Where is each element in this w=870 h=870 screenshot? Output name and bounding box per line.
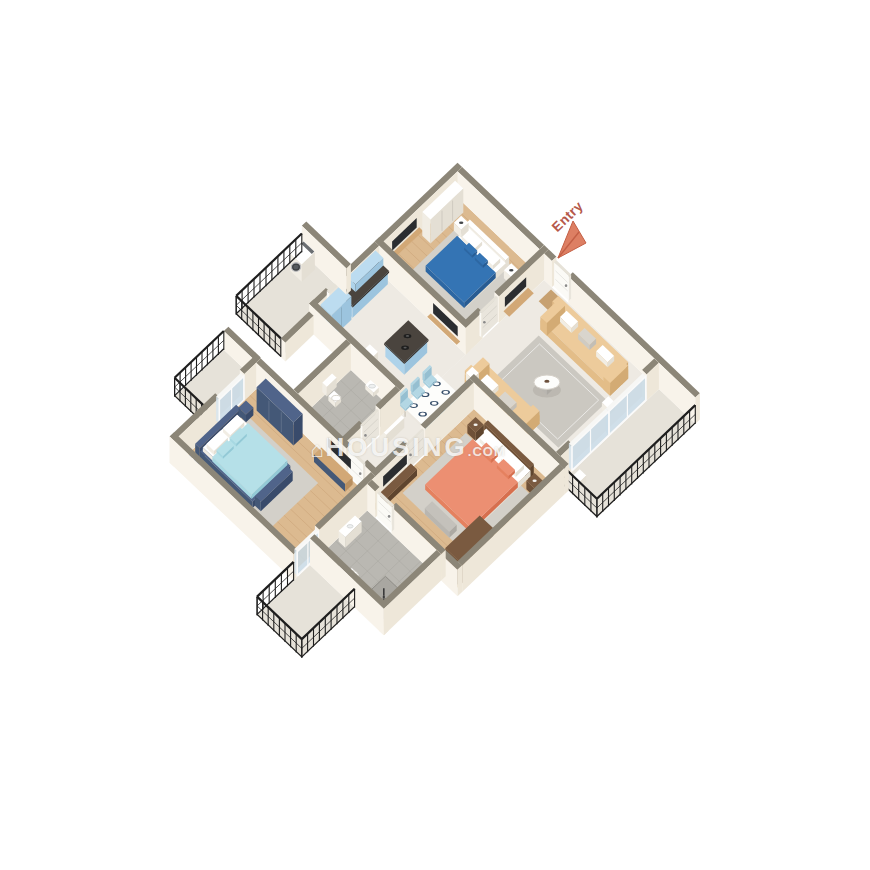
wall — [384, 605, 389, 636]
floor-plan-svg — [0, 0, 870, 870]
wall — [466, 324, 471, 355]
floor-plan-3d: Entry ⌂HOUSING.COM — [0, 0, 870, 870]
entry-marker — [558, 221, 586, 258]
wall — [695, 393, 700, 424]
wall — [564, 464, 569, 495]
wall — [441, 550, 446, 581]
toilet-seat — [332, 395, 341, 400]
wall — [346, 264, 351, 295]
wall — [458, 566, 463, 597]
